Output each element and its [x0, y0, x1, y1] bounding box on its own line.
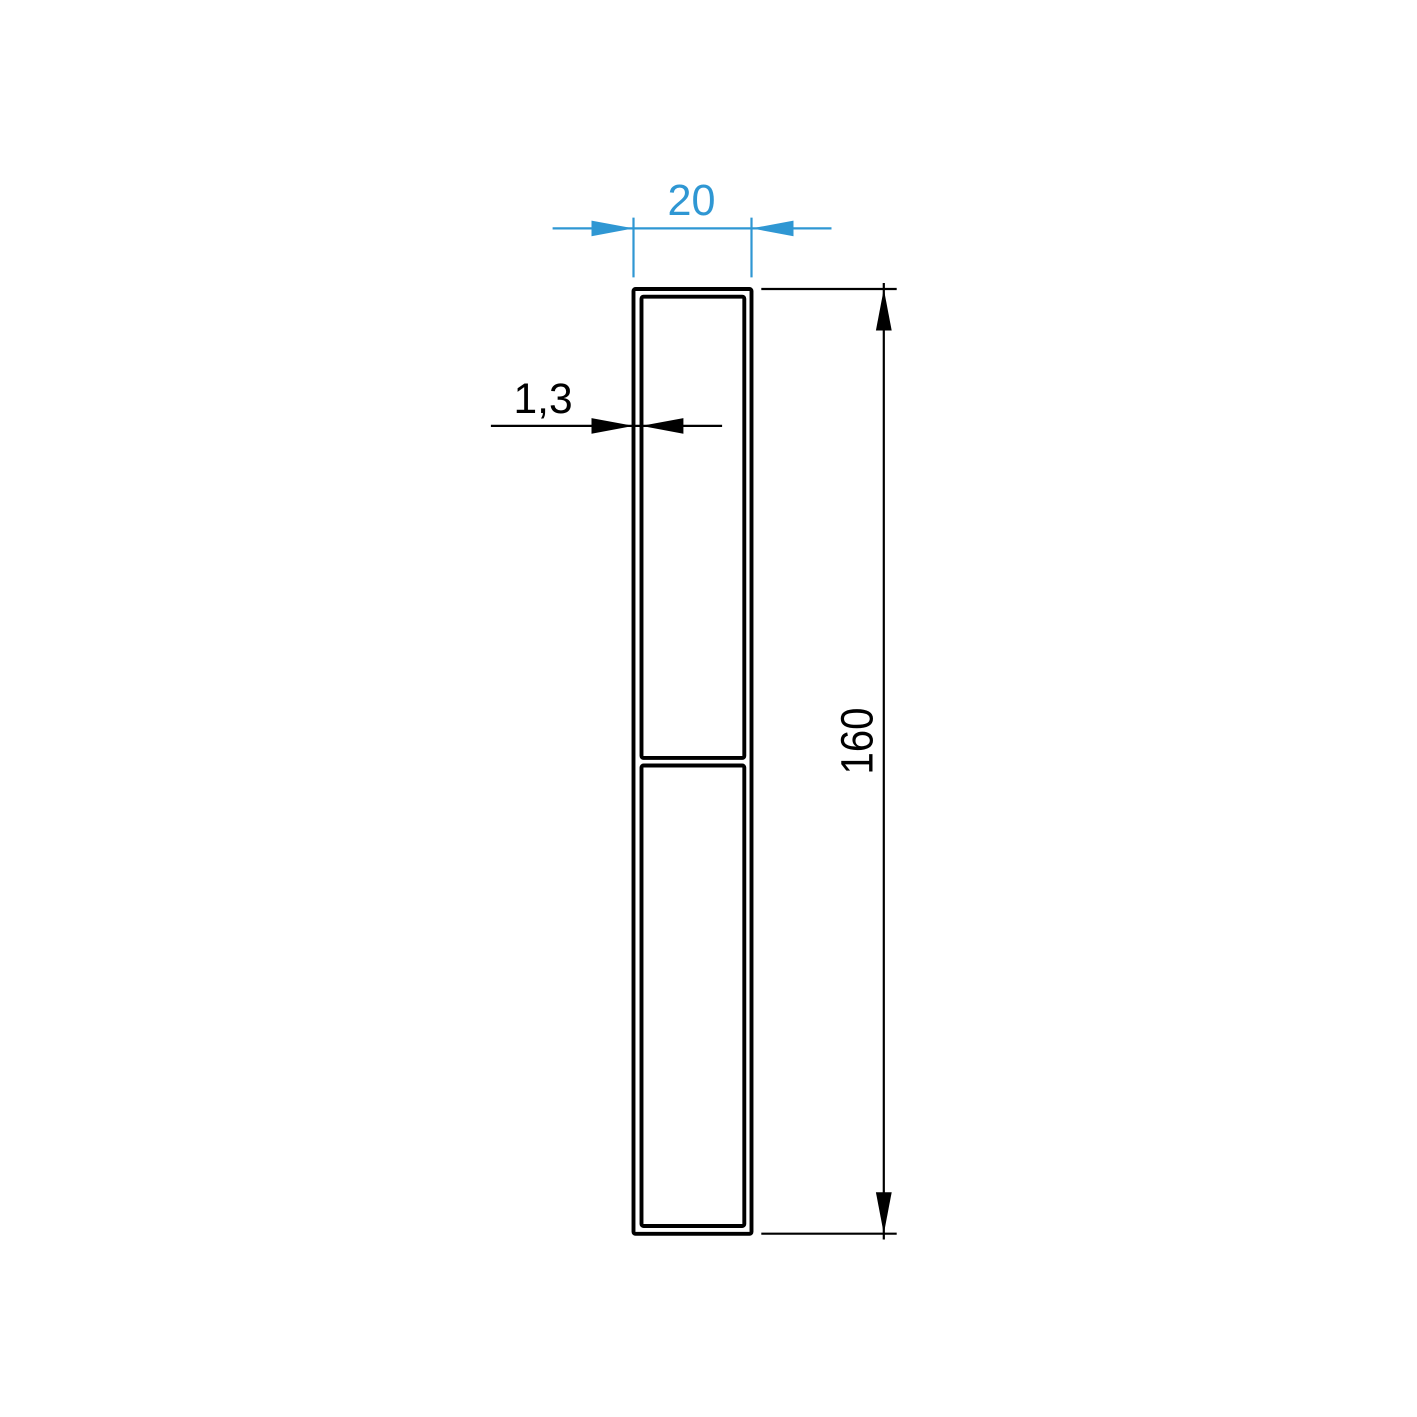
svg-text:20: 20 [668, 177, 716, 225]
svg-text:160: 160 [832, 708, 883, 775]
svg-text:1,3: 1,3 [514, 376, 573, 423]
